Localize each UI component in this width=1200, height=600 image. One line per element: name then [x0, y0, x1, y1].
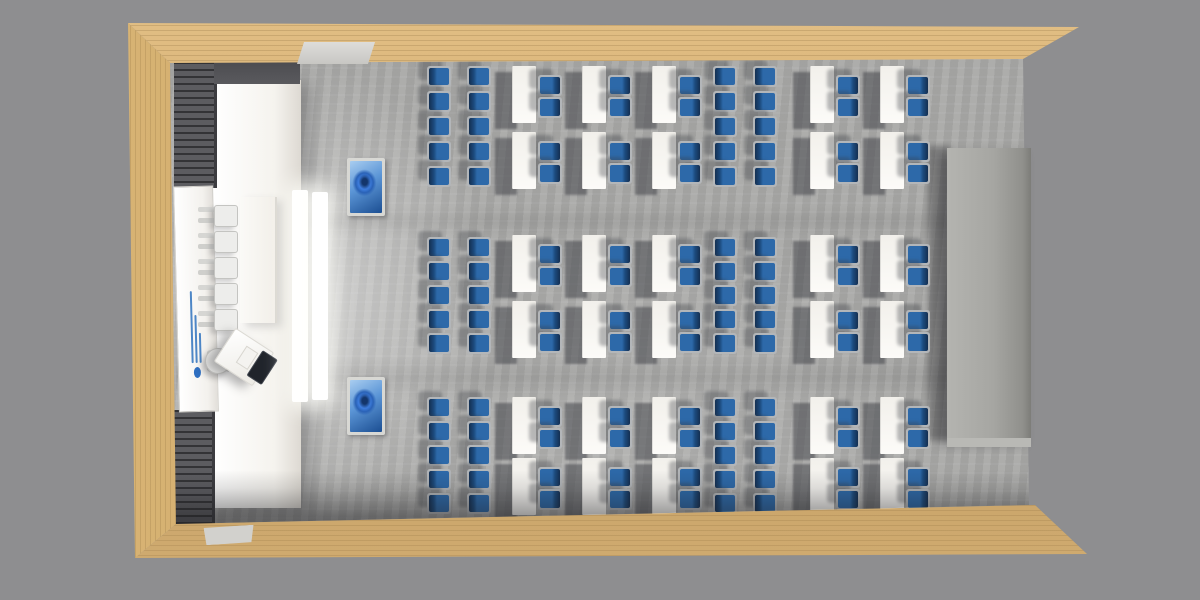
student-table-unit	[652, 235, 712, 292]
tv-screen-wallpaper	[350, 161, 382, 213]
student-chair	[538, 332, 562, 353]
student-table-unit	[810, 132, 870, 189]
student-table-unit	[512, 397, 572, 454]
student-table-unit	[512, 235, 572, 292]
student-chair	[467, 166, 491, 187]
student-table-unit	[880, 397, 940, 454]
chair-seat	[838, 334, 858, 351]
chair-seat	[469, 239, 489, 256]
chair-seat	[715, 68, 735, 85]
chair-seat	[755, 118, 775, 135]
head-table	[240, 197, 277, 323]
chair-seat	[214, 231, 238, 253]
student-chair	[713, 66, 737, 87]
chair-seat	[429, 447, 449, 464]
chair-seat	[755, 423, 775, 440]
chair-seat	[540, 165, 560, 182]
student-chair	[906, 489, 930, 510]
student-chair	[467, 493, 491, 514]
door-bottom	[204, 525, 255, 546]
chair-seat	[715, 399, 735, 416]
chair-seat	[429, 311, 449, 328]
chair-seat	[540, 268, 560, 285]
chair-seat	[469, 311, 489, 328]
student-chair	[906, 97, 930, 118]
student-chair	[836, 97, 860, 118]
student-table-unit	[880, 66, 940, 123]
chair-seat	[715, 335, 735, 352]
chair-seat	[610, 99, 630, 116]
chair-seat	[680, 491, 700, 508]
chair-seat	[429, 93, 449, 110]
student-chair	[713, 91, 737, 112]
chair-seat	[469, 118, 489, 135]
chair-seat	[429, 335, 449, 352]
white-guest-chair	[198, 282, 242, 308]
student-table-unit	[582, 66, 642, 123]
chair-seat	[715, 93, 735, 110]
student-chair	[836, 332, 860, 353]
chair-seat	[715, 118, 735, 135]
student-chair	[753, 116, 777, 137]
student-chair	[427, 66, 451, 87]
student-chair	[467, 116, 491, 137]
chair-seat	[680, 430, 700, 447]
student-chair	[427, 91, 451, 112]
student-chair	[538, 428, 562, 449]
chair-seat	[838, 99, 858, 116]
student-chair	[713, 493, 737, 514]
chair-seat	[755, 311, 775, 328]
student-chair	[753, 91, 777, 112]
chair-seat	[469, 168, 489, 185]
chair-seat	[838, 430, 858, 447]
chair-seat	[429, 263, 449, 280]
student-chair	[906, 332, 930, 353]
chair-seat	[715, 495, 735, 512]
wall-tv-display	[347, 377, 385, 435]
chair-seat	[429, 68, 449, 85]
student-table-unit	[582, 235, 642, 292]
chair-seat	[755, 399, 775, 416]
chair-seat	[610, 165, 630, 182]
student-table-unit	[512, 458, 572, 515]
chair-seat	[680, 165, 700, 182]
chair-seat	[755, 263, 775, 280]
student-table-unit	[880, 235, 940, 292]
chair-seat	[469, 495, 489, 512]
student-chair	[836, 428, 860, 449]
chair-seat	[214, 205, 238, 227]
chair-seat	[755, 471, 775, 488]
chair-seat	[540, 430, 560, 447]
chair-seat	[429, 118, 449, 135]
student-chair	[678, 332, 702, 353]
student-table-unit	[810, 458, 870, 515]
student-table-unit	[582, 301, 642, 358]
student-chair	[427, 116, 451, 137]
chair-seat	[610, 430, 630, 447]
student-chair	[678, 266, 702, 287]
student-table-unit	[652, 132, 712, 189]
student-table-unit	[880, 132, 940, 189]
student-chair	[906, 428, 930, 449]
chair-seat	[540, 334, 560, 351]
chair-seat	[429, 143, 449, 160]
tv-screen-wallpaper	[350, 380, 382, 432]
chair-seat	[908, 430, 928, 447]
chair-seat	[755, 287, 775, 304]
student-table-unit	[512, 301, 572, 358]
chair-seat	[429, 287, 449, 304]
chair-seat	[755, 168, 775, 185]
student-chair	[608, 332, 632, 353]
student-chair	[713, 116, 737, 137]
wall-tv-display	[347, 158, 385, 216]
student-chair	[608, 163, 632, 184]
student-table-unit	[880, 301, 940, 358]
student-table-unit	[512, 66, 572, 123]
chair-seat	[715, 143, 735, 160]
student-table-unit	[810, 66, 870, 123]
chair-seat	[469, 471, 489, 488]
chair-seat	[680, 334, 700, 351]
student-chair	[753, 141, 777, 162]
student-chair	[678, 97, 702, 118]
student-chair	[467, 91, 491, 112]
student-table-unit	[810, 397, 870, 454]
student-table-unit	[652, 458, 712, 515]
chair-seat	[214, 283, 238, 305]
student-chair	[678, 489, 702, 510]
chair-seat	[908, 165, 928, 182]
chair-seat	[610, 334, 630, 351]
chair-seat	[469, 423, 489, 440]
chair-seat	[680, 268, 700, 285]
chair-seat	[469, 263, 489, 280]
student-chair	[467, 333, 491, 354]
student-chair	[836, 266, 860, 287]
student-table-unit	[810, 301, 870, 358]
chair-seat	[838, 491, 858, 508]
student-chair	[836, 489, 860, 510]
chair-seat	[755, 447, 775, 464]
chair-seat	[908, 491, 928, 508]
student-chair	[467, 141, 491, 162]
chair-seat	[755, 239, 775, 256]
student-chair	[713, 166, 737, 187]
student-chair	[906, 163, 930, 184]
student-chair	[538, 97, 562, 118]
student-chair	[427, 141, 451, 162]
chair-seat	[838, 268, 858, 285]
chair-seat	[715, 471, 735, 488]
chair-seat	[715, 263, 735, 280]
student-chair	[427, 493, 451, 514]
chair-seat	[214, 257, 238, 279]
chair-seat	[755, 143, 775, 160]
chair-seat	[540, 99, 560, 116]
chair-seat	[610, 268, 630, 285]
student-table-unit	[652, 66, 712, 123]
chair-seat	[680, 99, 700, 116]
chair-seat	[469, 143, 489, 160]
chair-seat	[755, 68, 775, 85]
chair-seat	[429, 239, 449, 256]
chair-seat	[908, 334, 928, 351]
student-chair	[678, 428, 702, 449]
student-chair	[713, 141, 737, 162]
student-chair	[538, 266, 562, 287]
student-table-unit	[810, 235, 870, 292]
projection-screen	[312, 192, 328, 400]
student-chair	[608, 266, 632, 287]
cabinet-base	[947, 438, 1031, 447]
student-table-unit	[652, 397, 712, 454]
white-guest-chair	[198, 204, 242, 230]
student-table-unit	[512, 132, 572, 189]
storage-cabinet	[947, 148, 1031, 438]
student-chair	[608, 97, 632, 118]
chair-seat	[838, 165, 858, 182]
chair-seat	[755, 335, 775, 352]
chair-seat	[755, 93, 775, 110]
student-table-unit	[582, 397, 642, 454]
chair-seat	[715, 287, 735, 304]
chair-seat	[429, 471, 449, 488]
student-table-unit	[582, 132, 642, 189]
chair-seat	[469, 68, 489, 85]
chair-seat	[469, 93, 489, 110]
student-chair	[753, 166, 777, 187]
chair-seat	[540, 491, 560, 508]
chair-seat	[610, 491, 630, 508]
student-chair	[538, 163, 562, 184]
student-chair	[753, 333, 777, 354]
student-chair	[427, 166, 451, 187]
projection-screen	[292, 190, 308, 402]
chair-seat	[469, 399, 489, 416]
white-guest-chair	[198, 256, 242, 282]
chair-seat	[469, 287, 489, 304]
chair-seat	[429, 495, 449, 512]
chair-seat	[469, 335, 489, 352]
chair-seat	[715, 423, 735, 440]
chair-seat	[755, 495, 775, 512]
student-chair	[467, 66, 491, 87]
chair-seat	[429, 423, 449, 440]
student-chair	[678, 163, 702, 184]
student-chair	[427, 333, 451, 354]
chair-seat	[469, 447, 489, 464]
chair-seat	[715, 447, 735, 464]
chair-seat	[429, 168, 449, 185]
chair-seat	[429, 399, 449, 416]
chair-seat	[908, 99, 928, 116]
student-chair	[906, 266, 930, 287]
student-chair	[753, 66, 777, 87]
chair-seat	[908, 268, 928, 285]
chair-seat	[715, 311, 735, 328]
chair-seat	[715, 168, 735, 185]
chair-seat	[715, 239, 735, 256]
student-table-unit	[880, 458, 940, 515]
student-chair	[608, 489, 632, 510]
white-guest-chair	[198, 230, 242, 256]
classroom-3d-render-viewport[interactable]	[0, 0, 1200, 600]
door-top	[297, 42, 375, 64]
student-chair	[713, 333, 737, 354]
student-chair	[608, 428, 632, 449]
student-chair	[836, 163, 860, 184]
student-table-unit	[652, 301, 712, 358]
student-table-unit	[582, 458, 642, 515]
student-chair	[538, 489, 562, 510]
